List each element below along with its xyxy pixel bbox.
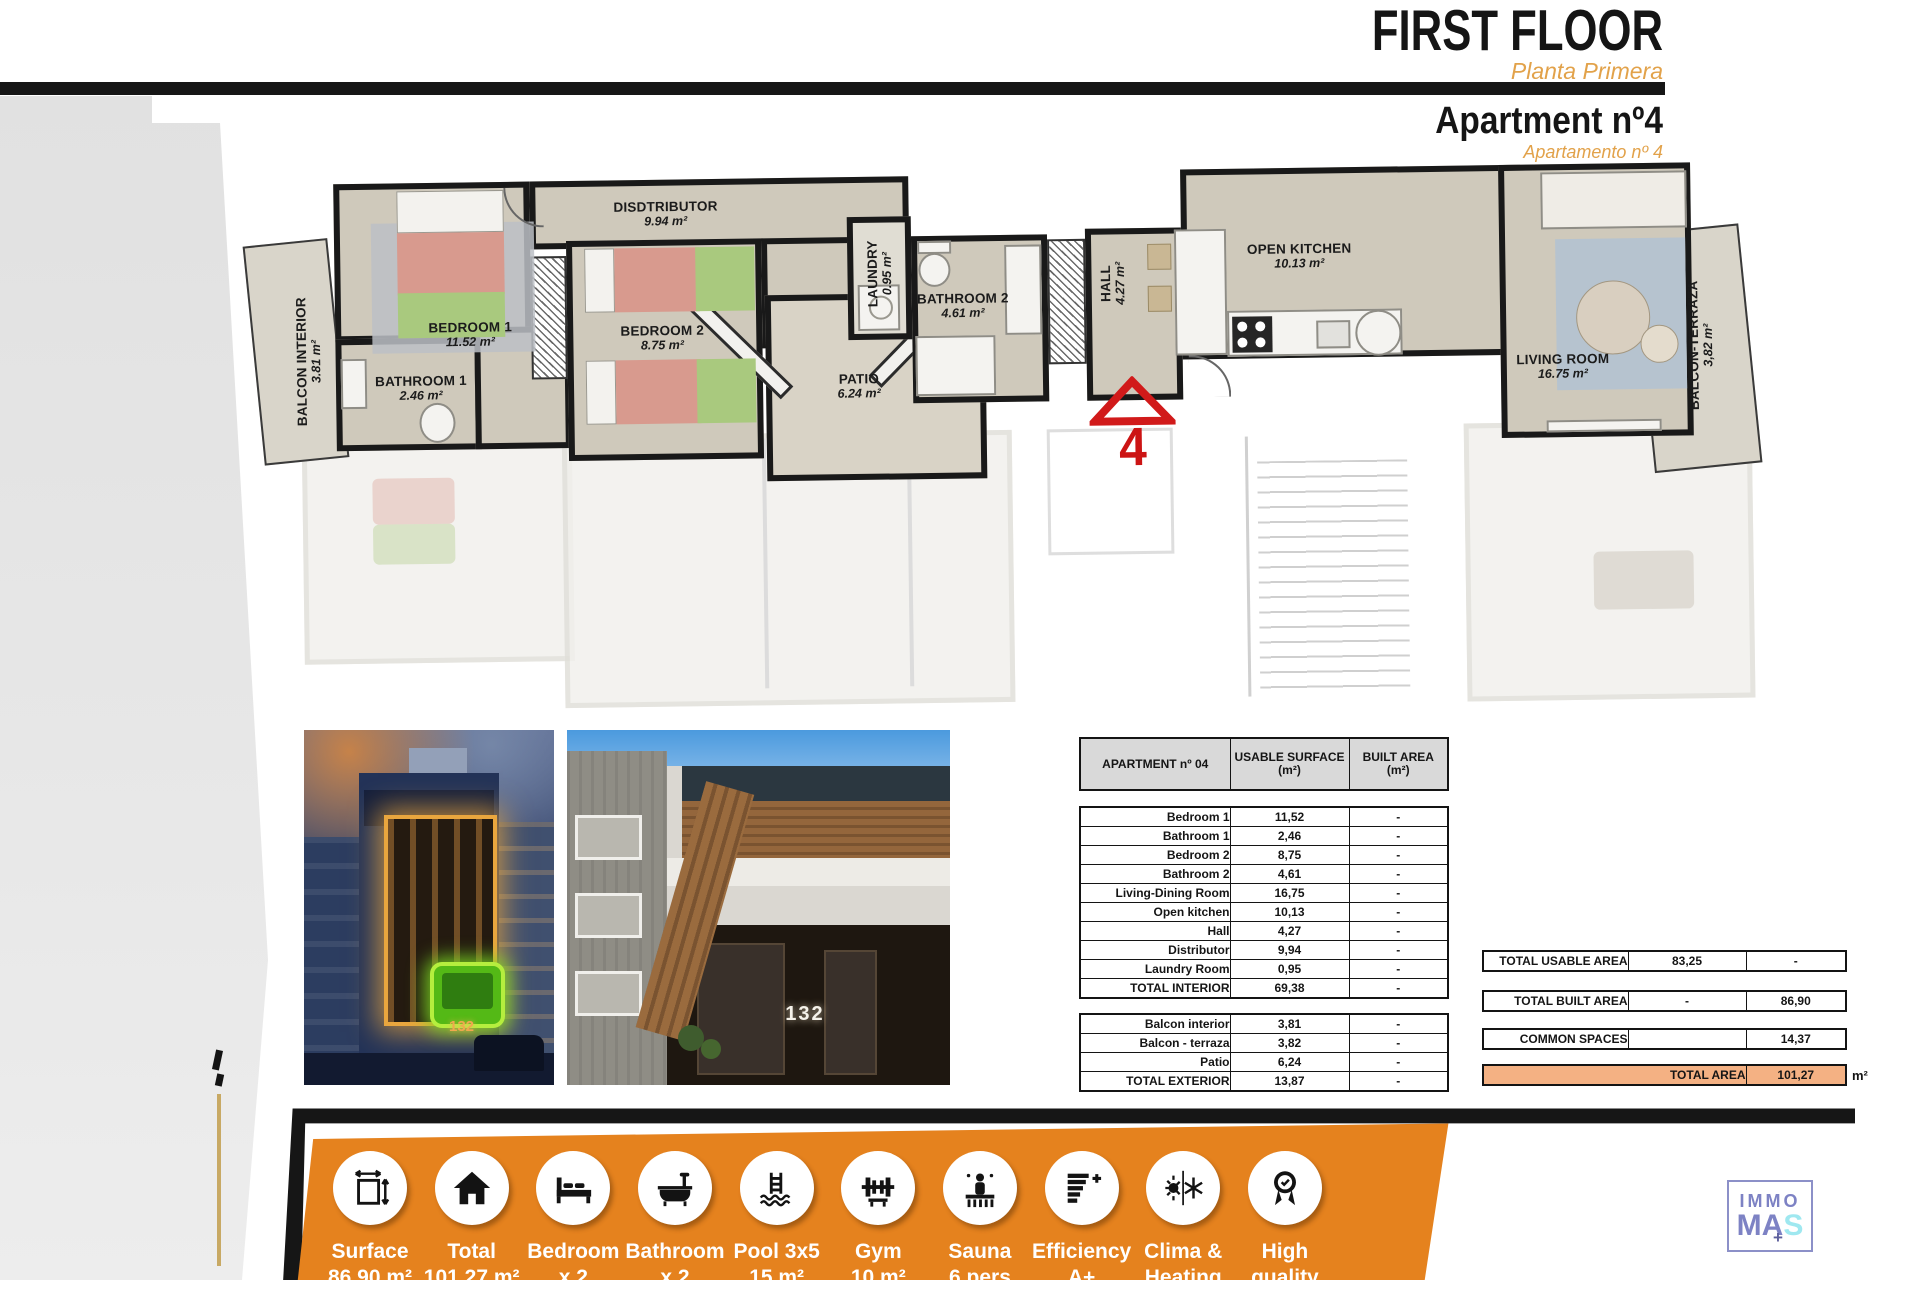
climate-icon (1146, 1151, 1220, 1225)
total-area-unit: m² (1852, 1068, 1868, 1083)
storefront-door (824, 950, 878, 1075)
ghost-sofa (1593, 550, 1694, 609)
table-row: TOTAL AREA 101,27 (1483, 1065, 1846, 1085)
header-usable: USABLE SURFACE (m²) (1230, 738, 1349, 790)
house-icon (435, 1151, 509, 1225)
row-value: 10,13 (1230, 903, 1349, 922)
bed2b-pillow (586, 360, 617, 424)
row-value: 101,27 (1746, 1065, 1846, 1085)
amenity-row: Surface 86.90 m² Total 101.27 m² Bedroom… (320, 1151, 1335, 1291)
table-row: Open kitchen10,13- (1080, 903, 1448, 922)
row-value: 0,95 (1230, 960, 1349, 979)
amenity-sauna: Sauna 6 pers (930, 1151, 1030, 1291)
immomas-logo: IMMO MAS + (1727, 1180, 1813, 1252)
row-value: 16,75 (1230, 884, 1349, 903)
row-label: Living-Dining Room (1080, 884, 1230, 903)
table-row: TOTAL EXTERIOR13,87- (1080, 1072, 1448, 1092)
hall-wardrobe (1047, 239, 1087, 365)
label-balcon-interior: BALCON INTERIOR 3.81 m² (293, 297, 324, 426)
bed1-blanket (397, 232, 505, 295)
row-label: TOTAL INTERIOR (1080, 979, 1230, 999)
bed2a-blanket-green (695, 246, 755, 311)
amenity-clima: Clima & Heating (1133, 1151, 1233, 1291)
table-row: Balcon interior3,81- (1080, 1014, 1448, 1034)
elevator-ghost (1047, 428, 1175, 556)
row-value: 6,24 (1230, 1053, 1349, 1072)
row-label: Open kitchen (1080, 903, 1230, 922)
amenity-pool: Pool 3x5 15 m² (727, 1151, 827, 1291)
row-value: 3,82 (1230, 1034, 1349, 1053)
summary-total: TOTAL AREA 101,27 (1482, 1064, 1847, 1086)
amenity-bedroom: Bedroom x 2 (523, 1151, 623, 1291)
summary-usable: TOTAL USABLE AREA 83,25 - (1482, 950, 1847, 972)
label-hall: HALL 4.27 m² (1098, 262, 1128, 305)
exterior-area-table: Balcon interior3,81-Balcon - terraza3,82… (1079, 1013, 1449, 1092)
row-value: 69,38 (1230, 979, 1349, 999)
row-label: Bathroom 2 (1080, 865, 1230, 884)
bed2b-blanket-green (697, 358, 757, 423)
row-value: - (1349, 827, 1448, 846)
logo-plus: + (1773, 1223, 1783, 1253)
tv-bench (1547, 419, 1662, 433)
plant (701, 1039, 721, 1059)
label-bathroom2: BATHROOM 2 4.61 m² (917, 290, 1009, 320)
door-arc (1189, 355, 1232, 398)
table-row: Living-Dining Room16,75- (1080, 884, 1448, 903)
row-label: Hall (1080, 922, 1230, 941)
row-label: COMMON SPACES (1483, 1029, 1628, 1049)
label-laundry: LAUNDRY 0.95 m² (865, 240, 895, 307)
row-value: 8,75 (1230, 846, 1349, 865)
label-patio: PATIO 6.24 m² (837, 371, 880, 401)
row-value: - (1349, 846, 1448, 865)
burner (1237, 322, 1247, 332)
bed2a-blanket (614, 247, 700, 312)
row-value: 86,90 (1746, 991, 1846, 1011)
label-bedroom2: BEDROOM 2 8.75 m² (620, 323, 704, 353)
row-value: - (1349, 922, 1448, 941)
table-row: TOTAL USABLE AREA 83,25 - (1483, 951, 1846, 971)
surface-measure-icon (333, 1151, 407, 1225)
table-header-row: APARTMENT nº 04 USABLE SURFACE (m²) BUIL… (1080, 738, 1448, 790)
logo-word-mas: MAS + (1729, 1211, 1811, 1241)
logo-word-immo: IMMO (1729, 1191, 1811, 1211)
row-value: - (1349, 1053, 1448, 1072)
bath1-sink (341, 359, 368, 409)
row-label: Patio (1080, 1053, 1230, 1072)
row-value: - (1349, 1014, 1448, 1034)
row-value: - (1628, 991, 1746, 1011)
table-row: TOTAL INTERIOR69,38- (1080, 979, 1448, 999)
quality-badge-icon (1248, 1151, 1322, 1225)
photo-night-facade: 132 (304, 730, 554, 1085)
burner (1237, 338, 1247, 348)
bathtub-icon (638, 1151, 712, 1225)
door-number-night: 132 (449, 1018, 474, 1035)
small-balcony (575, 893, 642, 938)
table-row: Patio6,24- (1080, 1053, 1448, 1072)
label-bedroom1: BEDROOM 1 11.52 m² (428, 319, 512, 349)
unit-marker-number: 4 (1119, 416, 1148, 478)
summary-built: TOTAL BUILT AREA - 86,90 (1482, 990, 1847, 1012)
row-label: Balcon - terraza (1080, 1034, 1230, 1053)
row-value: - (1349, 979, 1448, 999)
row-label: TOTAL BUILT AREA (1483, 991, 1628, 1011)
kitchen-stool (1148, 286, 1172, 312)
row-label: Laundry Room (1080, 960, 1230, 979)
table-row: Bathroom 12,46- (1080, 827, 1448, 846)
row-label: Distributor (1080, 941, 1230, 960)
amenity-quality: High quality (1235, 1151, 1335, 1291)
energy-rating-icon (1045, 1151, 1119, 1225)
photo-day-facade: 132 (567, 730, 950, 1085)
row-value: 13,87 (1230, 1072, 1349, 1092)
table-row: TOTAL BUILT AREA - 86,90 (1483, 991, 1846, 1011)
table-row: Hall4,27- (1080, 922, 1448, 941)
row-label: Balcon interior (1080, 1014, 1230, 1034)
table-row: Laundry Room0,95- (1080, 960, 1448, 979)
row-label: Bedroom 1 (1080, 807, 1230, 827)
bed2b-blanket (616, 359, 702, 424)
row-value: 83,25 (1628, 951, 1746, 971)
sofa (1540, 170, 1687, 229)
row-value: - (1349, 941, 1448, 960)
row-label: TOTAL EXTERIOR (1080, 1072, 1230, 1092)
label-open-kitchen: OPEN KITCHEN 10.13 m² (1247, 241, 1352, 271)
table-row: Balcon - terraza3,82- (1080, 1034, 1448, 1053)
summary-common: COMMON SPACES 14,37 (1482, 1028, 1847, 1050)
header-apartment: APARTMENT nº 04 (1080, 738, 1230, 790)
burner (1255, 321, 1265, 331)
night-building-left (304, 837, 364, 1086)
row-value: - (1349, 1034, 1448, 1053)
ghost-bed-green (373, 524, 456, 565)
amenity-total: Total 101.27 m² (422, 1151, 522, 1291)
row-value: - (1349, 865, 1448, 884)
bed-icon (536, 1151, 610, 1225)
row-value: - (1349, 903, 1448, 922)
bed2a-pillow (584, 248, 615, 312)
parked-car (474, 1035, 544, 1071)
pool-ladder-icon (740, 1151, 814, 1225)
amenity-surface: Surface 86.90 m² (320, 1151, 420, 1291)
row-value: 3,81 (1230, 1014, 1349, 1034)
row-value: 11,52 (1230, 807, 1349, 827)
row-value: - (1349, 807, 1448, 827)
row-value (1628, 1029, 1746, 1049)
bath2-shower (915, 335, 996, 396)
small-balcony (575, 815, 642, 860)
row-label: TOTAL USABLE AREA (1483, 951, 1628, 971)
label-living-room: LIVING ROOM 16.75 m² (1516, 351, 1609, 381)
header-built: BUILT AREA (m²) (1349, 738, 1448, 790)
row-value: 9,94 (1230, 941, 1349, 960)
kitchen-island (1174, 229, 1228, 356)
ghost-bed-pink (372, 478, 455, 525)
kitchen-sink (1316, 320, 1350, 348)
row-label: TOTAL AREA (1483, 1065, 1746, 1085)
row-value: 14,37 (1746, 1029, 1846, 1049)
table-row: Bedroom 111,52- (1080, 807, 1448, 827)
row-label: Bedroom 2 (1080, 846, 1230, 865)
highlight-window (442, 973, 493, 1009)
amenity-gym: Gym 10 m² (828, 1151, 928, 1291)
row-value: 4,61 (1230, 865, 1349, 884)
label-bathroom1: BATHROOM 1 2.46 m² (375, 373, 467, 403)
row-value: 4,27 (1230, 922, 1349, 941)
label-balcon-terraza: BALCON-TERRAZA 3,82 m² (1685, 280, 1716, 410)
table-row: Bathroom 24,61- (1080, 865, 1448, 884)
burner (1255, 337, 1265, 347)
amenity-efficiency: Efficiency A+ (1032, 1151, 1132, 1291)
dumbbell-icon (841, 1151, 915, 1225)
small-balcony (575, 971, 642, 1016)
row-value: - (1349, 884, 1448, 903)
stairs-steps (1257, 459, 1410, 696)
floor-plan-sheet: 4 (0, 0, 1920, 1294)
label-distributor: DISDTRIBUTOR 9.94 m² (613, 198, 718, 228)
kitchen-stool (1147, 244, 1171, 270)
bed1-pillow (396, 190, 504, 233)
row-value: - (1349, 1072, 1448, 1092)
sauna-icon (943, 1151, 1017, 1225)
row-value: 2,46 (1230, 827, 1349, 846)
amenity-bathroom: Bathroom x 2 (625, 1151, 725, 1291)
row-value: - (1746, 951, 1846, 971)
table-row: COMMON SPACES 14,37 (1483, 1029, 1846, 1049)
row-value: - (1349, 960, 1448, 979)
row-label: Bathroom 1 (1080, 827, 1230, 846)
bedroom-wardrobe (530, 256, 568, 379)
table-row: Distributor9,94- (1080, 941, 1448, 960)
bath2-vanity (1004, 244, 1042, 335)
table-row: Bedroom 28,75- (1080, 846, 1448, 865)
door-number-day: 132 (785, 1003, 824, 1026)
area-table-header: APARTMENT nº 04 USABLE SURFACE (m²) BUIL… (1079, 737, 1449, 791)
interior-area-table: Bedroom 111,52-Bathroom 12,46-Bedroom 28… (1079, 806, 1449, 999)
